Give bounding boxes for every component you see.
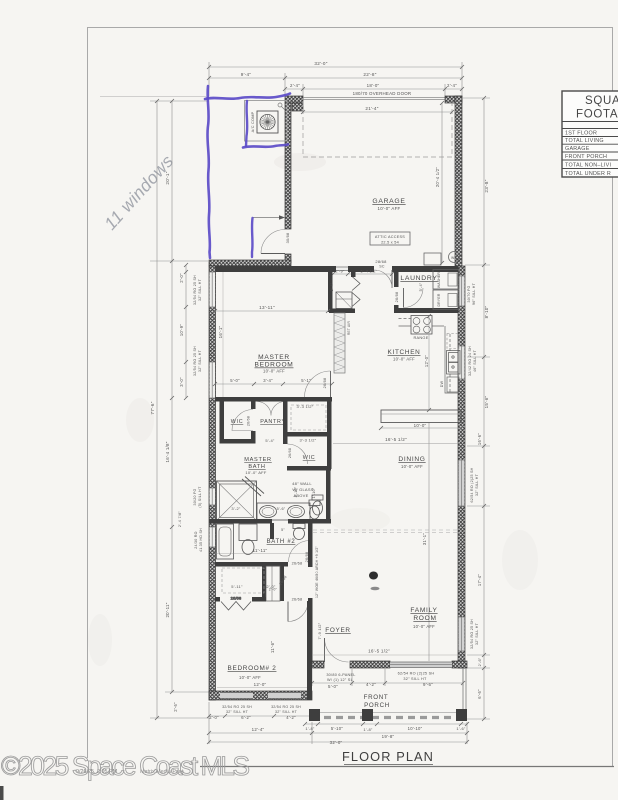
svg-text:RET AIR: RET AIR [347,321,351,336]
svg-text:23'-8": 23'-8" [484,179,489,192]
svg-text:9'-4": 9'-4" [241,72,252,77]
svg-text:21'-4": 21'-4" [365,106,378,111]
svg-text:22'-8": 22'-8" [363,72,376,77]
svg-text:W/ (1) 12" SL: W/ (1) 12" SL [327,678,353,682]
svg-text:16'-5 1/2": 16'-5 1/2" [368,649,390,654]
svg-text:10'-0" AFF: 10'-0" AFF [239,675,261,680]
svg-text:32" SILL HT: 32" SILL HT [403,677,427,681]
svg-text:32" SILL HT: 32" SILL HT [275,710,298,714]
svg-text:20'-11": 20'-11" [165,602,170,617]
svg-text:2'-9": 2'-9" [335,269,345,274]
svg-text:BATH #2: BATH #2 [267,539,296,545]
svg-text:2'-6": 2'-6" [173,702,178,712]
svg-text:SC: SC [379,265,385,269]
svg-text:11'-11": 11'-11" [253,548,268,553]
svg-text:10'-10": 10'-10" [408,726,423,731]
svg-text:32" SILL HT: 32" SILL HT [475,622,479,645]
svg-text:32" SILL HT: 32" SILL HT [475,473,479,496]
svg-text:10'-0" AFF: 10'-0" AFF [378,206,401,211]
svg-text:TOTAL LIVING: TOTAL LIVING [565,138,604,144]
svg-text:1'-10": 1'-10" [312,487,316,498]
svg-text:16'-6": 16'-6" [477,433,482,445]
svg-text:WIC: WIC [231,419,244,425]
svg-text:31'-1": 31'-1" [422,533,427,545]
svg-text:WH: WH [451,256,457,260]
svg-text:32'-0": 32'-0" [314,61,327,66]
svg-text:DW: DW [440,380,444,387]
svg-text:30/68: 30/68 [286,233,290,244]
svg-text:FRONT: FRONT [364,694,389,701]
svg-text:(5) SILL HT: (5) SILL HT [198,486,202,508]
svg-text:PORCH: PORCH [364,702,390,709]
svg-text:32" SILL HT: 32" SILL HT [198,278,202,301]
svg-text:5'-1": 5'-1" [301,378,311,383]
svg-text:1'-8": 1'-8" [305,726,315,731]
svg-text:30/70 FG: 30/70 FG [467,286,471,303]
svg-text:SQUA: SQUA [585,95,618,107]
svg-text:12" WOE 46/80 ARCH +9 1/2": 12" WOE 46/80 ARCH +9 1/2" [315,545,319,598]
svg-text:20'-4 1/2": 20'-4 1/2" [435,167,440,187]
svg-text:180/70 OVERHEAD DOOR: 180/70 OVERHEAD DOOR [353,91,412,96]
svg-text:LAUNDRY: LAUNDRY [400,275,437,282]
svg-text:A/C COMP: A/C COMP [251,111,255,132]
svg-text:©2025 Space Coast MLS: ©2025 Space Coast MLS [1,751,250,781]
svg-text:26/68: 26/68 [395,292,399,303]
svg-text:TOTAL NON–LIVI: TOTAL NON–LIVI [565,163,611,169]
svg-text:7'-9 1/2": 7'-9 1/2" [317,622,322,639]
svg-text:12'-0": 12'-0" [254,682,267,687]
svg-text:32/42 RO 24 SH: 32/42 RO 24 SH [468,346,472,376]
svg-text:41.35 HD SH: 41.35 HD SH [199,528,203,552]
svg-text:FAMILY: FAMILY [410,607,437,614]
svg-text:26/68: 26/68 [292,562,303,566]
svg-text:26/68: 26/68 [247,416,251,426]
svg-text:32/54 RO 25 SH: 32/54 RO 25 SH [470,619,474,649]
svg-text:9'-6": 9'-6" [423,682,433,687]
svg-text:32/54 RO 25 SH: 32/54 RO 25 SH [193,275,197,305]
svg-text:ATTIC ACCESS: ATTIC ACCESS [375,235,405,239]
svg-text:3'-3 1/2": 3'-3 1/2" [300,438,317,443]
svg-text:2'-10": 2'-10" [294,486,298,497]
svg-text:PANTRY: PANTRY [260,419,286,425]
svg-text:TOTAL UNDER R: TOTAL UNDER R [565,171,611,177]
svg-text:1ST FLOOR: 1ST FLOOR [565,131,597,137]
svg-text:10'-0" AFF: 10'-0" AFF [263,369,285,374]
svg-text:8'-10": 8'-10" [484,305,489,318]
svg-text:32'-0": 32'-0" [330,740,343,745]
svg-text:20'-1": 20'-1" [165,171,170,184]
svg-text:32/54 RO 25 SH: 32/54 RO 25 SH [222,705,252,709]
svg-text:6'-2": 6'-2" [241,715,251,720]
svg-text:5'-6": 5'-6" [277,507,286,511]
svg-text:5'-4": 5'-4" [330,282,334,291]
svg-text:5": 5" [281,528,285,532]
svg-text:32" SILL HT: 32" SILL HT [198,349,202,372]
svg-text:BEDROOM# 2: BEDROOM# 2 [228,665,277,672]
svg-text:5'-10": 5'-10" [331,726,343,731]
svg-text:32/54 RO 25 SH: 32/54 RO 25 SH [271,705,301,709]
svg-text:10'-0": 10'-0" [414,423,427,428]
svg-text:5'-0": 5'-0" [328,684,338,689]
svg-text:19'-8": 19'-8" [382,734,395,739]
svg-text:10'-0" AFF: 10'-0" AFF [401,464,423,469]
svg-text:5'-4 1/2": 5'-4 1/2" [361,269,378,274]
svg-text:13'-11": 13'-11" [259,305,275,310]
svg-text:62/54 RO (2)25 SH: 62/54 RO (2)25 SH [398,672,435,676]
svg-text:10'-0" AFF: 10'-0" AFF [245,470,266,475]
svg-text:WASHER: WASHER [437,272,441,289]
svg-text:FLOOR PLAN: FLOOR PLAN [342,749,434,764]
svg-text:4'-2": 4'-2" [286,715,296,720]
svg-text:5'-4": 5'-4" [419,282,423,291]
svg-text:DRYER: DRYER [437,293,441,306]
svg-text:1'-8": 1'-8" [363,727,373,732]
svg-text:3'-0": 3'-0" [179,377,184,387]
svg-text:2'-0": 2'-0" [209,715,219,720]
svg-text:26/68: 26/68 [292,598,303,602]
svg-text:2'-4 7/8": 2'-4 7/8" [178,511,182,528]
svg-text:24/30 RO: 24/30 RO [194,531,198,548]
svg-text:26/68: 26/68 [231,597,242,601]
svg-text:5'-11": 5'-11" [231,584,243,589]
svg-text:46" SILL HT: 46" SILL HT [473,349,477,372]
svg-text:MASTER: MASTER [258,354,290,361]
svg-text:26/68: 26/68 [323,378,327,389]
svg-text:12'-4": 12'-4" [252,727,265,732]
svg-text:5'-4": 5'-4" [265,438,275,443]
svg-text:10'-0" AFF: 10'-0" AFF [413,624,435,629]
svg-text:FOYER: FOYER [325,627,351,634]
svg-text:GARAGE: GARAGE [565,146,590,152]
svg-text:48" WALL: 48" WALL [292,481,312,486]
svg-text:22.5 x 54: 22.5 x 54 [381,241,399,245]
svg-text:28/68: 28/68 [375,259,387,264]
svg-text:77'-6": 77'-6" [150,401,155,414]
svg-text:32" SILL HT: 32" SILL HT [226,710,249,714]
svg-text:10'-0" AFF: 10'-0" AFF [393,357,415,362]
svg-text:DINING: DINING [398,456,425,463]
svg-text:1'-6": 1'-6" [456,726,466,731]
svg-text:30/20 FG: 30/20 FG [193,489,197,506]
svg-text:2'-0": 2'-0" [266,584,276,589]
svg-text:2'-4": 2'-4" [290,83,300,88]
svg-text:26/68: 26/68 [288,448,292,458]
svg-text:BEDROOM: BEDROOM [255,362,294,369]
svg-text:3'-2": 3'-2" [231,506,241,511]
svg-text:62/54 RO (2)25 SH: 62/54 RO (2)25 SH [470,467,474,502]
svg-text:KITCHEN: KITCHEN [388,349,421,356]
svg-text:3'-3 1/2": 3'-3 1/2" [297,404,314,409]
svg-text:MASTER: MASTER [244,457,272,463]
svg-text:WIC: WIC [303,455,316,461]
svg-text:16'-4 1/8": 16'-4 1/8" [165,441,170,462]
svg-text:3'-4": 3'-4" [263,378,273,383]
svg-text:17'-4": 17'-4" [477,574,482,586]
svg-text:96" SILL HT: 96" SILL HT [472,282,476,305]
svg-text:6'-6": 6'-6" [477,689,482,699]
svg-text:16'-5 1/2": 16'-5 1/2" [385,437,407,442]
svg-text:16'-1": 16'-1" [218,325,223,338]
svg-text:30/80 6-PANEL: 30/80 6-PANEL [326,673,355,677]
svg-text:2'-0": 2'-0" [179,273,184,283]
svg-text:32/54 RO 25 SH: 32/54 RO 25 SH [193,346,197,376]
svg-text:10'-9": 10'-9" [179,324,184,336]
svg-text:GARAGE: GARAGE [372,198,405,205]
svg-text:FOOTA: FOOTA [576,109,618,121]
svg-text:ROOM: ROOM [413,615,436,622]
svg-text:18'-0": 18'-0" [367,83,380,88]
svg-text:2'-4": 2'-4" [447,83,457,88]
svg-text:11'-6": 11'-6" [270,641,275,654]
svg-text:4'-2": 4'-2" [366,682,376,687]
svg-text:15'-6": 15'-6" [484,395,489,408]
svg-text:FRONT PORCH: FRONT PORCH [565,154,607,160]
svg-text:12'-0": 12'-0" [424,355,429,367]
svg-text:11 windows: 11 windows [100,151,177,234]
svg-text:5'-0": 5'-0" [230,378,240,383]
svg-text:2'-6": 2'-6" [478,657,482,666]
svg-text:RANGE: RANGE [413,335,428,340]
